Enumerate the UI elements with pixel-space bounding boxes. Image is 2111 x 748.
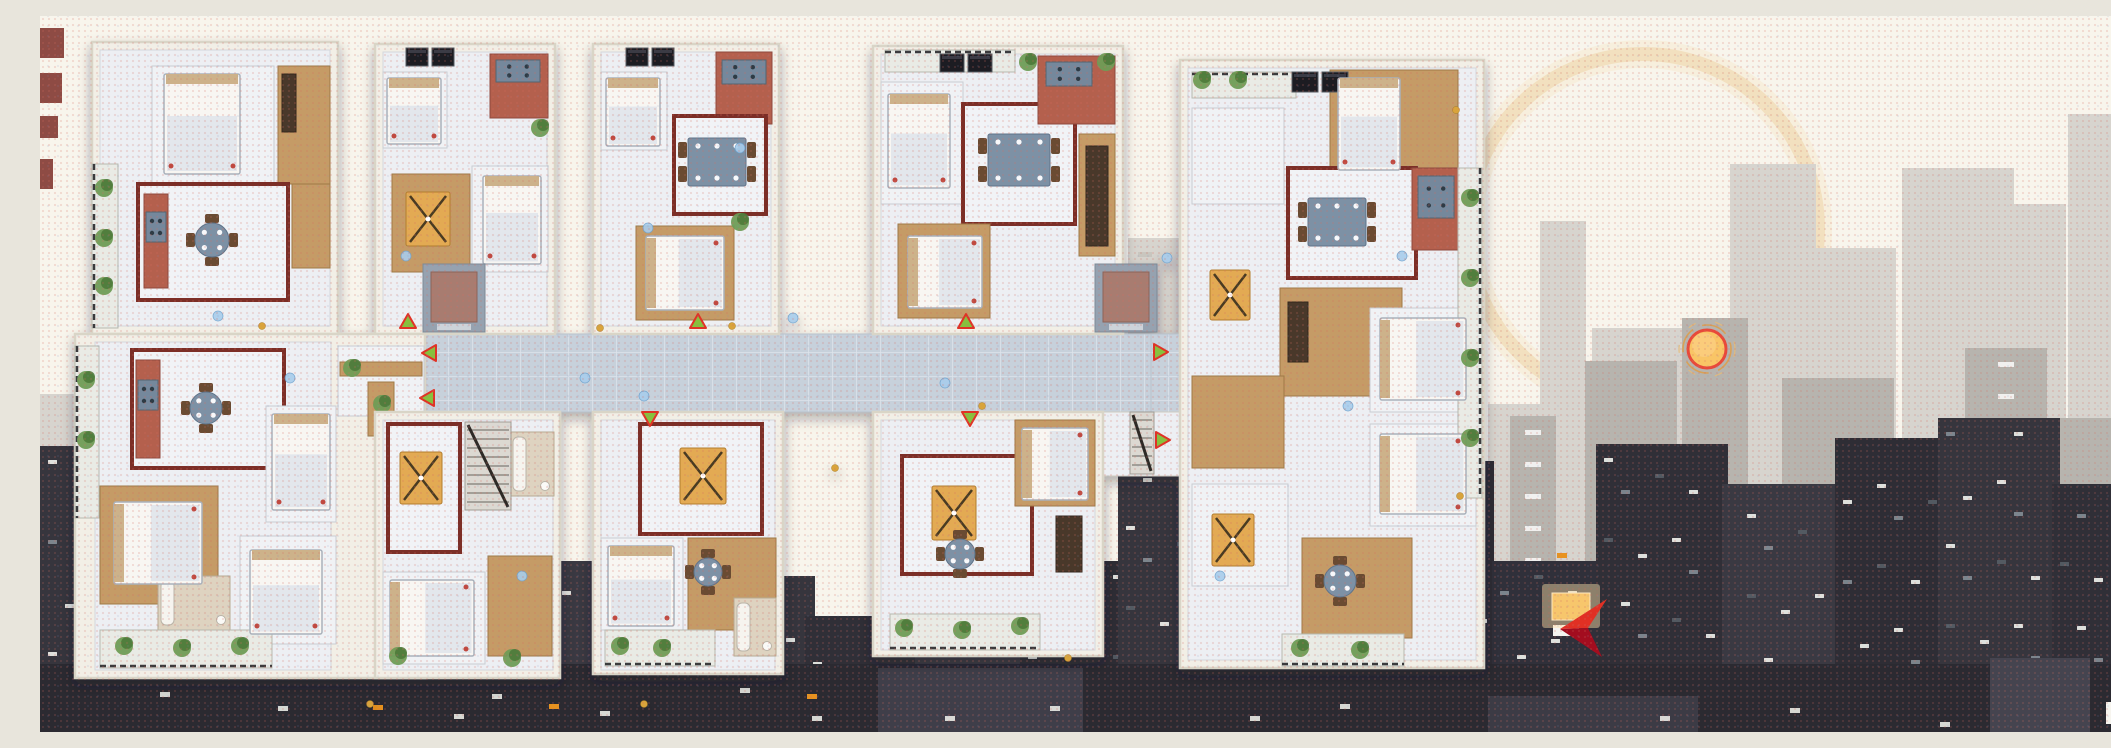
bed (888, 94, 950, 188)
plan-fragment (40, 73, 62, 103)
window-orange (373, 705, 383, 710)
plant (1011, 617, 1029, 635)
plant (1019, 53, 1037, 71)
scene-canvas (40, 16, 2111, 732)
plant (1461, 269, 1479, 287)
window-lit (1050, 706, 1060, 711)
floorplan-scene (40, 16, 2111, 732)
dining-table (1298, 198, 1376, 246)
skyline-strip (1990, 658, 2090, 732)
layer-plan (75, 42, 1484, 708)
window-lit (1940, 722, 1950, 727)
floorplan-unit-wing-3[interactable] (593, 412, 783, 674)
bed (1022, 428, 1088, 500)
plan-fragment (40, 116, 58, 138)
plant (895, 619, 913, 637)
plant (1351, 641, 1369, 659)
skyline-strip (1488, 696, 1698, 732)
plant (1461, 349, 1479, 367)
fixture-dot-icon (580, 373, 590, 383)
plant (1291, 639, 1309, 657)
bed (1380, 318, 1466, 400)
plant (77, 431, 95, 449)
plan-fragment (40, 28, 64, 58)
kitchen-counter (1418, 176, 1454, 218)
plant (1461, 429, 1479, 447)
window-lit (600, 711, 610, 716)
floorplan-unit-tower-1[interactable] (92, 42, 338, 334)
fixture-dot-icon (401, 251, 411, 261)
bed (608, 546, 674, 626)
plant (77, 371, 95, 389)
fixture-dot-icon (735, 143, 745, 153)
rooftop-panel (432, 48, 454, 66)
fixture-dot-icon (517, 571, 527, 581)
room-w (488, 556, 552, 656)
plant (1193, 71, 1211, 89)
plant (1097, 53, 1115, 71)
fixture-dot-icon (643, 223, 653, 233)
window-lit-large (2106, 702, 2111, 724)
door-knob-icon (1065, 655, 1072, 662)
window-lit (945, 716, 955, 721)
fixture-dot-icon (940, 378, 950, 388)
rooftop-panel (652, 48, 674, 66)
window-orange (1557, 553, 1567, 558)
door-knob-icon (729, 323, 736, 330)
bed (387, 78, 441, 144)
rooftop-panel (1292, 72, 1318, 92)
plant (953, 621, 971, 639)
plant (1229, 71, 1247, 89)
rooftop-panel (940, 54, 964, 72)
dining-table (978, 134, 1060, 186)
bed (114, 502, 202, 584)
fixture-dot-icon (1162, 253, 1172, 263)
plant (653, 639, 671, 657)
plant (343, 359, 361, 377)
door-knob-icon (259, 323, 266, 330)
bed (1338, 78, 1400, 170)
fixture-dot-icon (213, 311, 223, 321)
plant (503, 649, 521, 667)
window-lit (1250, 716, 1260, 721)
plant (95, 179, 113, 197)
plant (173, 639, 191, 657)
kitchen-counter (722, 60, 766, 84)
staircase (465, 422, 511, 510)
bed (164, 74, 240, 174)
rooftop-panel (626, 48, 648, 66)
kitchen-counter (496, 60, 540, 82)
window-lit (812, 716, 822, 721)
window-orange (807, 694, 817, 699)
plan-fragment (40, 159, 53, 189)
skyline-strip (878, 668, 1083, 732)
rooftop-panel (406, 48, 428, 66)
plant (531, 119, 549, 137)
room-w (1192, 376, 1284, 468)
plant (389, 647, 407, 665)
rooftop-panel (968, 54, 992, 72)
door-knob-icon (1457, 493, 1464, 500)
window-lit (740, 688, 750, 693)
fixture-dot-icon (285, 373, 295, 383)
door-knob-icon (979, 403, 986, 410)
bed (606, 78, 660, 146)
window-lit (160, 692, 170, 697)
wardrobe (1056, 516, 1082, 572)
plant (95, 277, 113, 295)
fixture-dot-icon (1397, 251, 1407, 261)
elevator (1095, 264, 1157, 332)
door-knob-icon (1453, 107, 1460, 114)
kitchen-counter (138, 380, 158, 410)
coffee-table (680, 448, 726, 504)
coffee-table (406, 192, 450, 246)
window-lit (278, 706, 288, 711)
bed (483, 176, 541, 264)
floorplan-unit-tower-3[interactable] (593, 44, 779, 334)
wardrobe (1288, 302, 1308, 362)
room-b (1192, 108, 1284, 204)
sun-core (1692, 333, 1716, 357)
bed (390, 580, 474, 656)
kitchen-counter (1046, 62, 1092, 86)
plant (95, 229, 113, 247)
plant (731, 213, 749, 231)
bed (272, 414, 330, 510)
window-lit (454, 714, 464, 719)
window-orange (549, 704, 559, 709)
coffee-table (1210, 270, 1250, 320)
bed (908, 236, 982, 308)
window-lit (1340, 704, 1350, 709)
floorplan-unit-wing-4[interactable] (873, 412, 1103, 656)
wardrobe (1086, 146, 1108, 246)
plant (611, 637, 629, 655)
window-lit (1790, 708, 1800, 713)
corridor (426, 334, 1151, 412)
kitchen-counter (146, 212, 166, 242)
bed (1380, 434, 1466, 514)
floorplan-unit-tower-4[interactable] (873, 46, 1123, 334)
plant (231, 637, 249, 655)
window-lit (492, 694, 502, 699)
floorplan (75, 42, 1484, 708)
door-knob-icon (832, 465, 839, 472)
floorplan-unit-tower-5[interactable] (1180, 60, 1484, 668)
fixture-dot-icon (1215, 571, 1225, 581)
door-knob-icon (641, 701, 648, 708)
plant (1461, 189, 1479, 207)
wardrobe (282, 74, 296, 132)
door-knob-icon (367, 701, 374, 708)
staircase (1130, 412, 1154, 474)
fixture-dot-icon (1343, 401, 1353, 411)
plant (115, 637, 133, 655)
plant (373, 395, 391, 413)
fixture-dot-icon (788, 313, 798, 323)
window-lit (1660, 716, 1670, 721)
room-w (292, 184, 330, 268)
coffee-table (400, 452, 442, 504)
fixture-dot-icon (639, 391, 649, 401)
floorplan-unit-wing-1[interactable] (75, 334, 425, 678)
bed (646, 236, 724, 310)
door-knob-icon (597, 325, 604, 332)
bed (250, 550, 322, 634)
elevator (423, 264, 485, 332)
coffee-table (1212, 514, 1254, 566)
